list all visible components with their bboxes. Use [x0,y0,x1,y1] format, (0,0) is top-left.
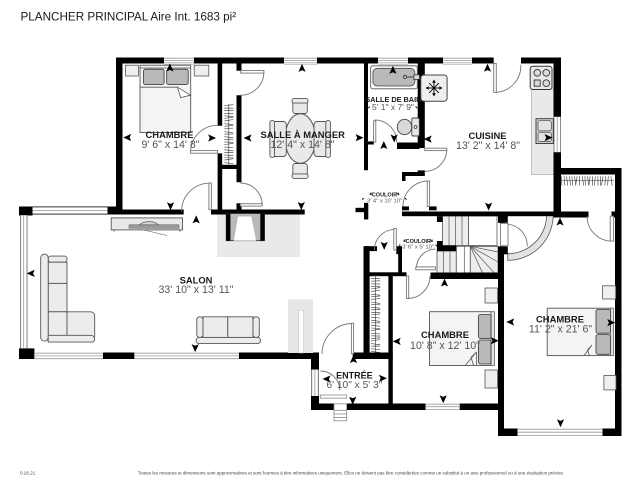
svg-text:ENTRÉE: ENTRÉE [336,370,373,380]
svg-text:CHAMBRE: CHAMBRE [421,329,469,340]
svg-text:Toutes les mesures et dimensio: Toutes les mesures et dimensions sont ap… [138,471,564,476]
svg-text:9' 6" x 14' 8": 9' 6" x 14' 8" [141,139,199,151]
svg-text:13' 2" x 14' 8": 13' 2" x 14' 8" [456,140,520,152]
svg-text:11' 2" x 21' 6": 11' 2" x 21' 6" [529,323,592,335]
svg-text:PLANCHER PRINCIPAL Aire Int. 1: PLANCHER PRINCIPAL Aire Int. 1683 pi² [21,11,237,24]
svg-text:5' 1" x 7' 9": 5' 1" x 7' 9" [372,102,414,112]
svg-text:3' 6" x 5' 10": 3' 6" x 5' 10" [402,244,434,250]
svg-text:6' 10" x 5' 3": 6' 10" x 5' 3" [326,380,382,391]
svg-text:3' 4" x 10' 10": 3' 4" x 10' 10" [367,198,402,204]
svg-text:33' 10" x 13' 11": 33' 10" x 13' 11" [159,284,234,296]
svg-text:12' 4" x 14' 8": 12' 4" x 14' 8" [271,139,335,151]
svg-text:0.26.21: 0.26.21 [20,471,36,476]
svg-text:10' 8" x 12' 10": 10' 8" x 12' 10" [410,340,480,352]
